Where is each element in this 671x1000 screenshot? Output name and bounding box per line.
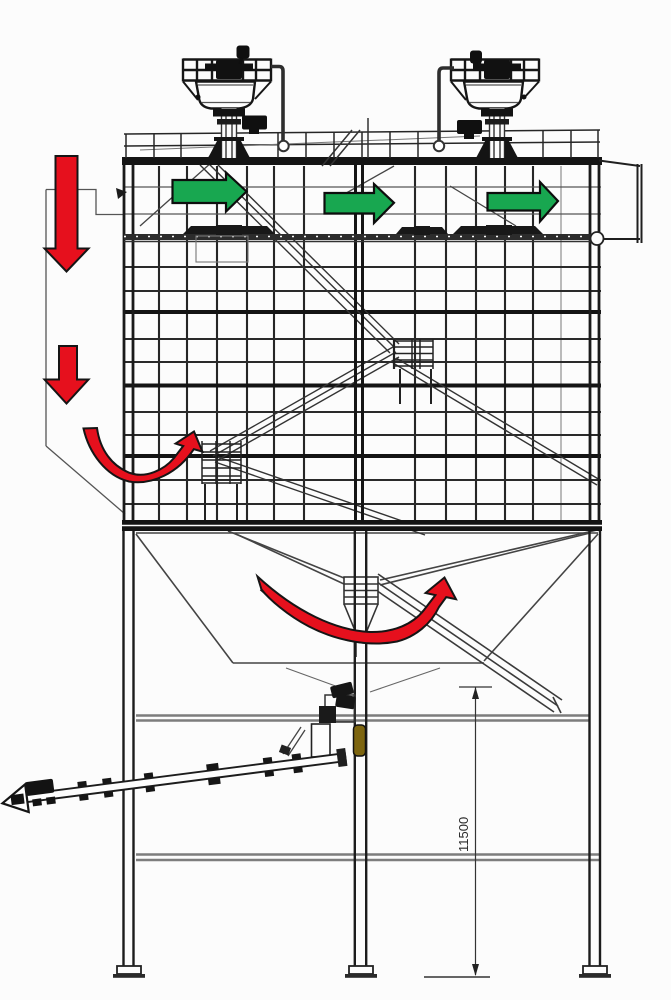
svg-text:11500: 11500 xyxy=(456,817,471,852)
